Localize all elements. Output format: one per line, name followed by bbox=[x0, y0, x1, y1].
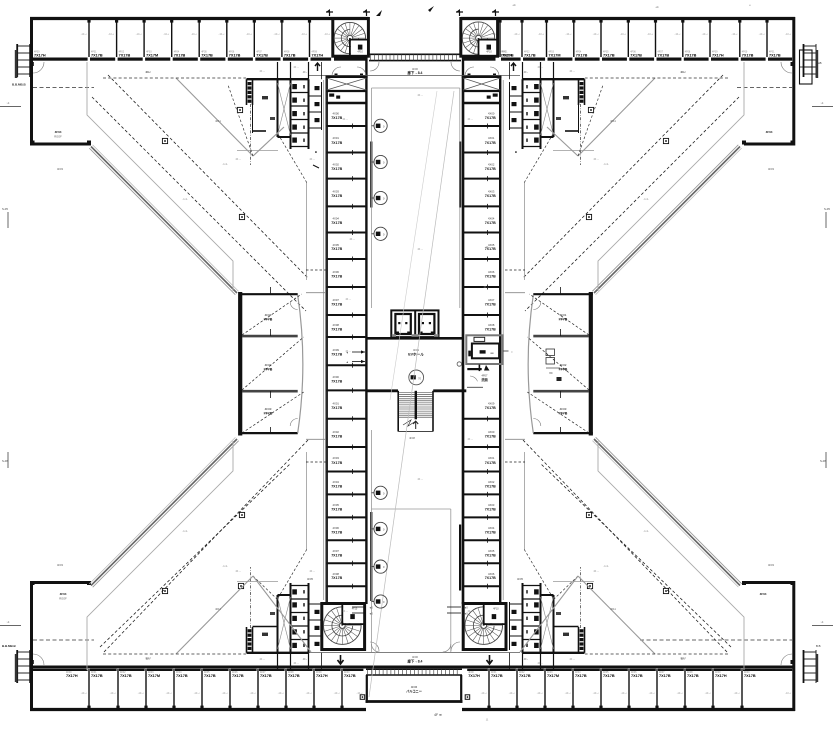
svg-text:7X17B: 7X17B bbox=[485, 275, 496, 279]
svg-text:4X09: 4X09 bbox=[333, 348, 340, 352]
svg-text:4X06: 4X06 bbox=[488, 572, 495, 576]
svg-text:7X17B: 7X17B bbox=[485, 406, 496, 410]
svg-text:4X04: 4X04 bbox=[488, 526, 495, 530]
svg-text:4X00: 4X00 bbox=[488, 112, 495, 116]
svg-text:-10⊣: -10⊣ bbox=[705, 691, 712, 695]
svg-text:-10⊣: -10⊣ bbox=[785, 32, 792, 36]
svg-text:B.B: B.B bbox=[816, 644, 821, 648]
svg-text:-10⊣: -10⊣ bbox=[647, 32, 654, 36]
svg-text:4F·‥: 4F·‥ bbox=[594, 571, 599, 573]
svg-text:7X17B: 7X17B bbox=[519, 674, 531, 678]
svg-text:≠F≠B: ≠F≠B bbox=[559, 412, 568, 416]
svg-text:4F05: 4F05 bbox=[307, 577, 313, 581]
svg-text:-1.4-: -1.4- bbox=[603, 565, 608, 568]
svg-text:4F04: 4F04 bbox=[55, 130, 62, 134]
svg-text:7X17B: 7X17B bbox=[176, 674, 188, 678]
svg-text:S-06: S-06 bbox=[2, 459, 8, 463]
svg-text:4F11: 4F11 bbox=[610, 119, 616, 123]
svg-text:7X17B: 7X17B bbox=[769, 53, 781, 57]
svg-text:7X17B: 7X17B bbox=[485, 530, 496, 534]
svg-text:4F·‥: 4F·‥ bbox=[468, 119, 473, 121]
svg-text:4X02: 4X02 bbox=[488, 480, 495, 484]
svg-text:4F·‥: 4F·‥ bbox=[343, 611, 348, 613]
svg-text:7X17B: 7X17B bbox=[485, 461, 496, 465]
svg-text:7X17B: 7X17B bbox=[331, 484, 342, 488]
svg-text:4X03: 4X03 bbox=[488, 190, 495, 194]
svg-text:バルコニー: バルコニー bbox=[406, 689, 422, 694]
svg-text:-10⊣: -10⊣ bbox=[219, 32, 226, 36]
svg-text:BD: BD bbox=[549, 372, 553, 375]
svg-text:7X17H: 7X17H bbox=[312, 53, 324, 57]
svg-text:-10⊣: -10⊣ bbox=[250, 691, 257, 695]
svg-text:7X17B: 7X17B bbox=[485, 141, 496, 145]
svg-text:7X17B: 7X17B bbox=[120, 674, 132, 678]
svg-text:7X17B: 7X17B bbox=[603, 674, 615, 678]
svg-text:7X17B: 7X17B bbox=[331, 507, 342, 511]
svg-text:4X05: 4X05 bbox=[488, 549, 495, 553]
svg-text:-10⊣: -10⊣ bbox=[110, 691, 117, 695]
svg-text:4F03: 4F03 bbox=[57, 167, 63, 171]
svg-text:7X17B: 7X17B bbox=[576, 53, 588, 57]
svg-text:-10⊣: -10⊣ bbox=[565, 691, 572, 695]
svg-text:7X17B: 7X17B bbox=[260, 674, 272, 678]
svg-text:7X17B: 7X17B bbox=[331, 247, 342, 251]
svg-text:4X06: 4X06 bbox=[333, 526, 340, 530]
svg-text:4F03: 4F03 bbox=[768, 563, 774, 567]
svg-text:7X17M: 7X17M bbox=[549, 53, 561, 57]
svg-text:-10⊣: -10⊣ bbox=[509, 691, 516, 695]
svg-text:4F‥: 4F‥ bbox=[681, 71, 686, 74]
svg-text:7X17H: 7X17H bbox=[712, 53, 724, 57]
svg-text:4F·‥: 4F·‥ bbox=[418, 95, 423, 97]
svg-text:4F10: 4F10 bbox=[493, 608, 499, 611]
svg-text:4F04: 4F04 bbox=[760, 592, 767, 596]
svg-text:4X01: 4X01 bbox=[488, 136, 495, 140]
svg-text:7X17B: 7X17B bbox=[485, 576, 496, 580]
svg-text:4X08: 4X08 bbox=[333, 323, 340, 327]
svg-text:4F·‥: 4F·‥ bbox=[346, 351, 351, 353]
svg-text:-10⊣: -10⊣ bbox=[81, 691, 88, 695]
svg-text:4X04: 4X04 bbox=[333, 216, 340, 220]
svg-text:7X17M: 7X17M bbox=[148, 674, 160, 678]
svg-text:4F04: 4F04 bbox=[60, 592, 67, 596]
svg-text:4F·‥: 4F·‥ bbox=[236, 159, 241, 161]
svg-text:4X01: 4X01 bbox=[488, 456, 495, 460]
svg-text:4F10: 4F10 bbox=[357, 51, 363, 54]
svg-text:4X01: 4X01 bbox=[333, 136, 340, 140]
svg-text:7X17B: 7X17B bbox=[174, 53, 186, 57]
svg-text:4F08: 4F08 bbox=[409, 437, 415, 440]
svg-text:4X07: 4X07 bbox=[333, 298, 340, 302]
svg-text:廊下→8.4: 廊下→8.4 bbox=[407, 70, 423, 75]
svg-text:7X17H: 7X17H bbox=[66, 674, 78, 678]
svg-text:7X17B: 7X17B bbox=[485, 221, 496, 225]
svg-text:-10⊣: -10⊣ bbox=[166, 691, 173, 695]
svg-text:7X17B: 7X17B bbox=[524, 53, 536, 57]
svg-text:7X17B: 7X17B bbox=[344, 674, 356, 678]
svg-text:4F‥: 4F‥ bbox=[146, 71, 151, 74]
svg-text:-10⊣: -10⊣ bbox=[324, 32, 331, 36]
svg-text:-1.4-: -1.4- bbox=[222, 565, 227, 568]
svg-text:-10⊣: -10⊣ bbox=[481, 691, 488, 695]
svg-text:-1.4-: -1.4- bbox=[603, 163, 608, 166]
svg-text:7X17H: 7X17H bbox=[715, 674, 727, 678]
svg-text:-10⊣: -10⊣ bbox=[593, 32, 600, 36]
svg-text:≡≡: ≡≡ bbox=[490, 351, 494, 355]
svg-text:7X17B: 7X17B bbox=[485, 507, 496, 511]
svg-text:7X17B: 7X17B bbox=[256, 53, 268, 57]
svg-text:4F‥: 4F‥ bbox=[303, 71, 308, 74]
svg-text:4F·‥: 4F·‥ bbox=[468, 439, 473, 441]
svg-text:-10⊣: -10⊣ bbox=[334, 691, 341, 695]
svg-text:廊下→8.4: 廊下→8.4 bbox=[407, 659, 423, 664]
svg-text:4F03: 4F03 bbox=[768, 167, 774, 171]
svg-text:-10⊣: -10⊣ bbox=[538, 32, 545, 36]
svg-text:7X17B: 7X17B bbox=[491, 674, 503, 678]
svg-text:-10⊣: -10⊣ bbox=[621, 691, 628, 695]
svg-text:7X17B: 7X17B bbox=[742, 53, 754, 57]
svg-text:4X02: 4X02 bbox=[488, 163, 495, 167]
svg-text:4F·‥: 4F·‥ bbox=[570, 659, 575, 661]
svg-text:7X17B: 7X17B bbox=[91, 53, 103, 57]
svg-text:-10⊣: -10⊣ bbox=[620, 32, 627, 36]
svg-text:-10⊣: -10⊣ bbox=[734, 691, 741, 695]
svg-text:4X00: 4X00 bbox=[333, 112, 340, 116]
svg-text:S-05: S-05 bbox=[2, 207, 8, 211]
svg-text:4X00: 4X00 bbox=[333, 375, 340, 379]
svg-text:4F02: 4F02 bbox=[560, 363, 567, 367]
svg-text:4F·‥: 4F·‥ bbox=[468, 611, 473, 613]
svg-text:4F·‥: 4F·‥ bbox=[260, 71, 265, 73]
svg-text:7X17B: 7X17B bbox=[744, 674, 756, 678]
svg-text:7X17B: 7X17B bbox=[331, 275, 342, 279]
svg-text:4X03: 4X03 bbox=[333, 190, 340, 194]
svg-text:7X17B: 7X17B bbox=[502, 53, 514, 57]
svg-text:4F‥: 4F‥ bbox=[681, 658, 686, 661]
svg-text:-10⊣: -10⊣ bbox=[108, 32, 115, 36]
svg-text:4F·‥: 4F·‥ bbox=[350, 239, 355, 241]
svg-text:-10⊣: -10⊣ bbox=[677, 691, 684, 695]
svg-text:4X05: 4X05 bbox=[333, 243, 340, 247]
svg-text:-10⊣: -10⊣ bbox=[194, 691, 201, 695]
svg-text:4F00: 4F00 bbox=[412, 655, 418, 659]
svg-text:-10⊣: -10⊣ bbox=[274, 32, 281, 36]
svg-text:-10⊣: -10⊣ bbox=[278, 691, 285, 695]
svg-text:≠F≠B: ≠F≠B bbox=[264, 412, 273, 416]
svg-text:4X02: 4X02 bbox=[333, 163, 340, 167]
svg-text:7X17B: 7X17B bbox=[91, 674, 103, 678]
svg-text:-1.4-: -1.4- bbox=[643, 530, 648, 533]
svg-text:4F10: 4F10 bbox=[352, 608, 358, 611]
svg-text:4F·‥: 4F·‥ bbox=[310, 571, 315, 573]
svg-text:7X17B: 7X17B bbox=[575, 674, 587, 678]
svg-text:4F·‥: 4F·‥ bbox=[538, 67, 543, 69]
svg-text:4F·‥: 4F·‥ bbox=[310, 159, 315, 161]
svg-text:4X01: 4X01 bbox=[333, 402, 340, 406]
svg-text:7X17B: 7X17B bbox=[485, 116, 496, 120]
svg-text:7X17B: 7X17B bbox=[331, 434, 342, 438]
svg-text:-1.4-: -1.4- bbox=[222, 163, 227, 166]
svg-text:4X07: 4X07 bbox=[488, 298, 495, 302]
svg-text:7X17B: 7X17B bbox=[331, 194, 342, 198]
svg-text:4F11: 4F11 bbox=[215, 119, 221, 123]
svg-text:4F11: 4F11 bbox=[215, 607, 221, 611]
svg-text:≠F≠B: ≠F≠B bbox=[264, 368, 273, 372]
svg-text:4X02: 4X02 bbox=[333, 430, 340, 434]
svg-text:4F06: 4F06 bbox=[411, 685, 418, 689]
svg-text:4X08: 4X08 bbox=[333, 572, 340, 576]
svg-text:4F05: 4F05 bbox=[517, 577, 523, 581]
svg-text:7X17B: 7X17B bbox=[485, 303, 496, 307]
svg-text:洗面: 洗面 bbox=[481, 377, 488, 382]
svg-text:7X17B: 7X17B bbox=[331, 141, 342, 145]
svg-text:7X17B: 7X17B bbox=[485, 553, 496, 557]
svg-text:4F‥: 4F‥ bbox=[524, 658, 529, 661]
svg-text:7X17B: 7X17B bbox=[658, 53, 670, 57]
svg-text:-10⊣: -10⊣ bbox=[306, 691, 313, 695]
svg-text:4F·‥: 4F·‥ bbox=[294, 67, 299, 69]
svg-text:4F·‥: 4F·‥ bbox=[570, 71, 575, 73]
svg-text:-10⊣: -10⊣ bbox=[732, 32, 739, 36]
svg-text:4F01: 4F01 bbox=[265, 313, 272, 317]
svg-text:-1.4-: -1.4- bbox=[643, 198, 648, 201]
svg-text:B.B.MB.B: B.B.MB.B bbox=[2, 644, 16, 648]
svg-text:≡B: ≡B bbox=[818, 61, 822, 65]
svg-text:4F·‥: 4F·‥ bbox=[260, 659, 265, 661]
svg-text:-10⊣: -10⊣ bbox=[163, 32, 170, 36]
svg-text:7X17B: 7X17B bbox=[288, 674, 300, 678]
svg-text:-10⊣: -10⊣ bbox=[566, 32, 573, 36]
svg-text:-10⊣: -10⊣ bbox=[222, 691, 229, 695]
svg-text:7X17B: 7X17B bbox=[685, 53, 697, 57]
svg-text:4X00: 4X00 bbox=[488, 430, 495, 434]
svg-text:7X17B: 7X17B bbox=[485, 194, 496, 198]
svg-text:7X17B: 7X17B bbox=[229, 53, 241, 57]
svg-text:4F‥: 4F‥ bbox=[524, 71, 529, 74]
svg-text:4X07: 4X07 bbox=[333, 549, 340, 553]
svg-text:4F‥: 4F‥ bbox=[303, 658, 308, 661]
svg-text:4X06: 4X06 bbox=[488, 270, 495, 274]
svg-text:7X17B: 7X17B bbox=[603, 53, 615, 57]
svg-text:7X17M: 7X17M bbox=[146, 53, 158, 57]
svg-text:7X17B: 7X17B bbox=[331, 303, 342, 307]
svg-text:4F03: 4F03 bbox=[560, 407, 567, 411]
svg-text:7X17B: 7X17B bbox=[232, 674, 244, 678]
svg-text:4F·‥: 4F·‥ bbox=[294, 663, 299, 665]
svg-text:7X17B: 7X17B bbox=[331, 461, 342, 465]
svg-text:7X17H: 7X17H bbox=[34, 53, 46, 57]
svg-text:4F·‥: 4F·‥ bbox=[538, 663, 543, 665]
svg-text:7X17B: 7X17B bbox=[331, 167, 342, 171]
svg-text:4X06: 4X06 bbox=[333, 270, 340, 274]
svg-text:-10⊣: -10⊣ bbox=[759, 32, 766, 36]
svg-text:7X17M: 7X17M bbox=[547, 674, 559, 678]
svg-text:7X17H: 7X17H bbox=[316, 674, 328, 678]
svg-text:7X17B: 7X17B bbox=[687, 674, 699, 678]
svg-text:-10⊣: -10⊣ bbox=[537, 691, 544, 695]
svg-text:7X17B: 7X17B bbox=[331, 576, 342, 580]
svg-text:4X04: 4X04 bbox=[333, 480, 340, 484]
svg-text:4X04: 4X04 bbox=[488, 216, 495, 220]
svg-text:7X17B: 7X17B bbox=[331, 406, 342, 410]
svg-text:4F·‥: 4F·‥ bbox=[484, 287, 489, 289]
svg-text:-10⊣: -10⊣ bbox=[301, 32, 308, 36]
svg-text:7X17B: 7X17B bbox=[331, 221, 342, 225]
svg-text:4X09: 4X09 bbox=[488, 402, 495, 406]
svg-text:ROOF: ROOF bbox=[54, 135, 62, 139]
svg-text:4F03: 4F03 bbox=[57, 563, 63, 567]
svg-text:7X17B: 7X17B bbox=[659, 674, 671, 678]
svg-text:4F04: 4F04 bbox=[766, 130, 773, 134]
svg-text:7X17B: 7X17B bbox=[204, 674, 216, 678]
svg-text:-1.4-: -1.4- bbox=[182, 198, 187, 201]
svg-text:70: 70 bbox=[418, 376, 422, 380]
svg-text:7X17B: 7X17B bbox=[331, 328, 342, 332]
svg-text:4F·‥: 4F·‥ bbox=[418, 479, 423, 481]
svg-text:-10⊣: -10⊣ bbox=[246, 32, 253, 36]
svg-text:-10⊣: -10⊣ bbox=[702, 32, 709, 36]
svg-text:7X17B: 7X17B bbox=[331, 353, 342, 357]
svg-text:4X03: 4X03 bbox=[488, 503, 495, 507]
svg-text:7X17H: 7X17H bbox=[468, 674, 480, 678]
svg-text:7X17B: 7X17B bbox=[485, 484, 496, 488]
svg-text:-10⊣: -10⊣ bbox=[514, 32, 521, 36]
svg-text:-10⊣: -10⊣ bbox=[593, 691, 600, 695]
svg-text:7X17B: 7X17B bbox=[631, 674, 643, 678]
svg-text:4X08: 4X08 bbox=[488, 323, 495, 327]
svg-text:4F09: 4F09 bbox=[413, 348, 419, 352]
svg-text:-1.4-: -1.4- bbox=[182, 530, 187, 533]
svg-text:7X17B: 7X17B bbox=[630, 53, 642, 57]
svg-text:4F·‥: 4F·‥ bbox=[343, 119, 348, 121]
svg-text:-10⊣: -10⊣ bbox=[785, 691, 792, 695]
svg-text:7X17B: 7X17B bbox=[485, 434, 496, 438]
svg-text:7X17B: 7X17B bbox=[331, 553, 342, 557]
svg-text:4F07: 4F07 bbox=[482, 374, 488, 378]
svg-text:4F·‥: 4F·‥ bbox=[486, 247, 491, 249]
svg-text:4F·‥: 4F·‥ bbox=[418, 249, 423, 251]
svg-text:7X17B: 7X17B bbox=[201, 53, 213, 57]
svg-text:B.B.MB.B: B.B.MB.B bbox=[12, 83, 26, 87]
svg-text:4F·‥: 4F·‥ bbox=[236, 571, 241, 573]
svg-text:4F03: 4F03 bbox=[265, 407, 272, 411]
svg-text:-10⊣: -10⊣ bbox=[191, 32, 198, 36]
svg-text:4F10: 4F10 bbox=[486, 51, 492, 54]
svg-text:7X17B: 7X17B bbox=[331, 116, 342, 120]
svg-text:7X17B: 7X17B bbox=[485, 167, 496, 171]
svg-text:-10⊣: -10⊣ bbox=[675, 32, 682, 36]
svg-text:S-06: S-06 bbox=[820, 459, 826, 463]
svg-text:-10⊣: -10⊣ bbox=[136, 32, 143, 36]
svg-text:4F·‥: 4F·‥ bbox=[346, 299, 351, 301]
svg-text:-10⊣: -10⊣ bbox=[81, 32, 88, 36]
svg-text:4F·‥: 4F·‥ bbox=[594, 159, 599, 161]
svg-text:-10⊣: -10⊣ bbox=[649, 691, 656, 695]
svg-text:◄: ◄ bbox=[346, 361, 349, 364]
svg-text:ROOF: ROOF bbox=[59, 597, 67, 601]
svg-text:4F11: 4F11 bbox=[610, 607, 616, 611]
svg-text:7X17B: 7X17B bbox=[331, 379, 342, 383]
svg-text:4X05: 4X05 bbox=[333, 503, 340, 507]
svg-text:4F01: 4F01 bbox=[560, 313, 567, 317]
svg-text:4F ≅: 4F ≅ bbox=[434, 713, 442, 717]
svg-text:S-05: S-05 bbox=[824, 207, 830, 211]
svg-text:7X17B: 7X17B bbox=[485, 328, 496, 332]
svg-text:4X03: 4X03 bbox=[333, 456, 340, 460]
svg-text:EVホール: EVホール bbox=[408, 352, 424, 357]
svg-text:7X17B: 7X17B bbox=[284, 53, 296, 57]
svg-text:7X17B: 7X17B bbox=[331, 530, 342, 534]
svg-text:7X17B: 7X17B bbox=[119, 53, 131, 57]
svg-text:4F‥: 4F‥ bbox=[146, 658, 151, 661]
svg-text:-10⊣: -10⊣ bbox=[138, 691, 145, 695]
